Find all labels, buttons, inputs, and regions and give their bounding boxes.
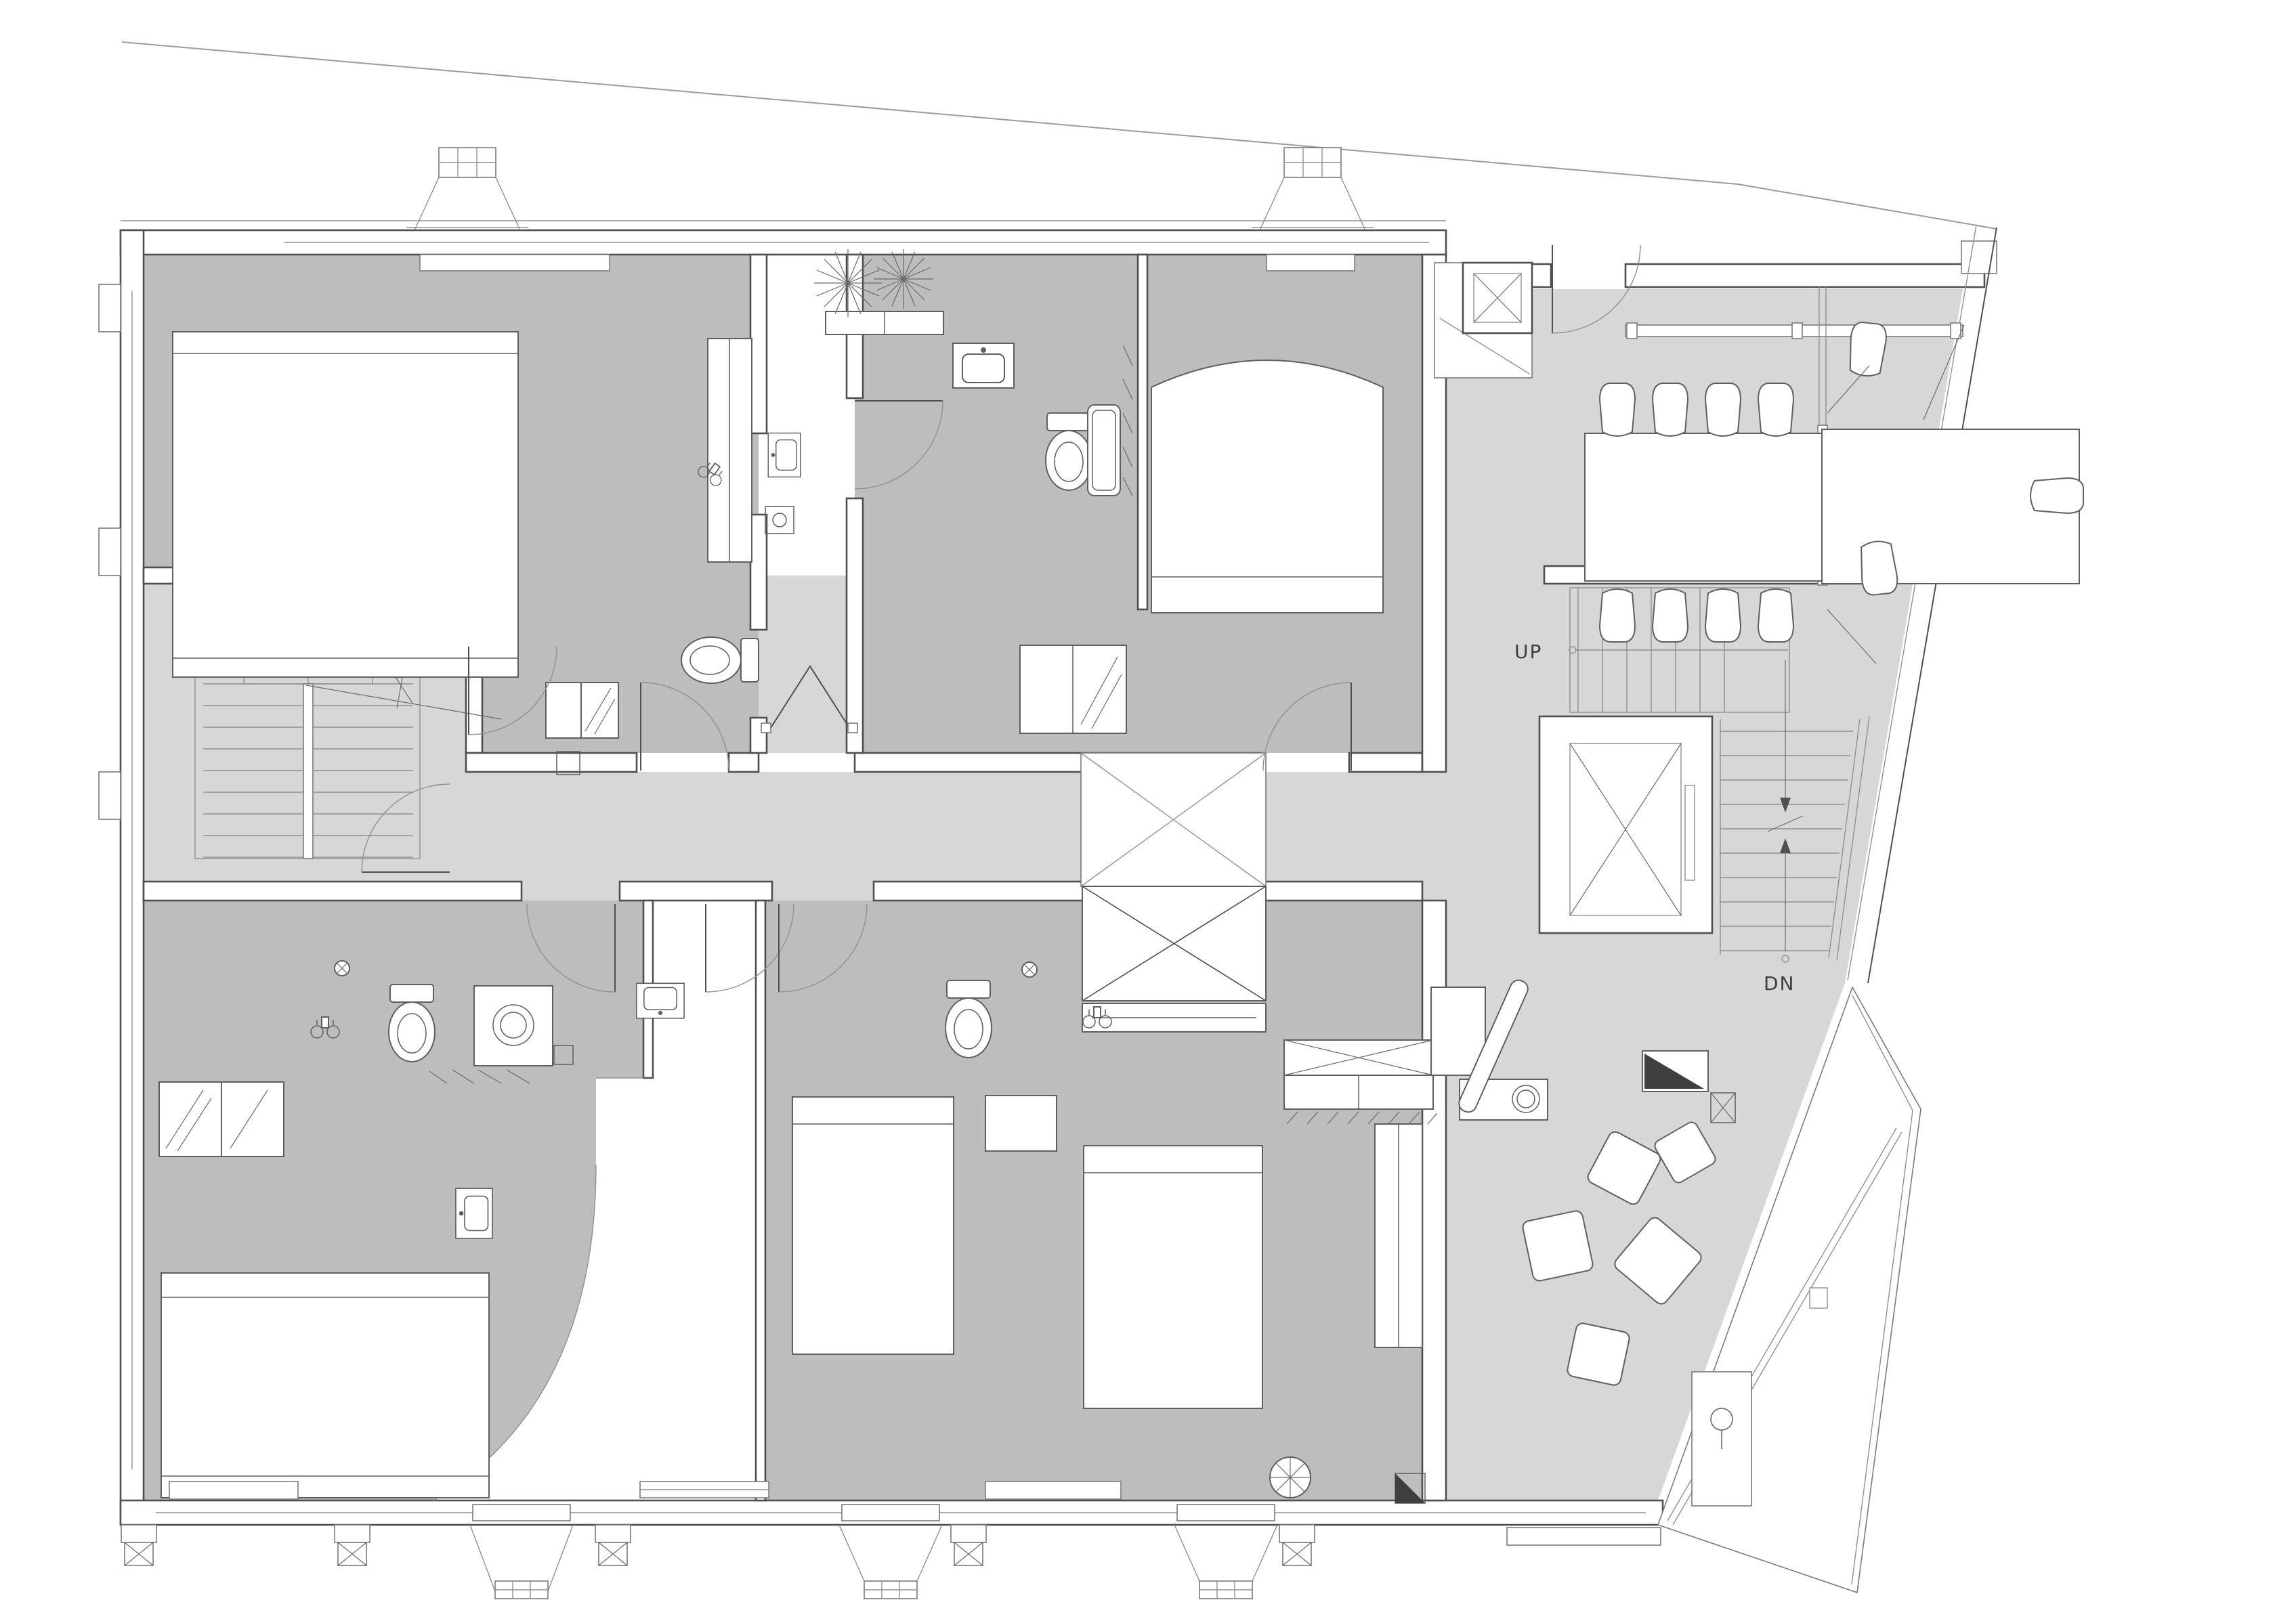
terrace-sill <box>1507 1528 1661 1545</box>
valve-3 <box>335 961 349 976</box>
pilaster-x-boxes <box>121 1525 1315 1565</box>
toilet-1 <box>681 637 759 683</box>
sink-1 <box>768 433 801 477</box>
bed-4a <box>792 1097 954 1354</box>
bay-window-bottom-2 <box>839 1505 942 1599</box>
round-table <box>1270 1457 1311 1498</box>
valve-4 <box>1022 962 1037 977</box>
bay-window-bottom-1 <box>470 1505 573 1599</box>
toilet-2 <box>1046 413 1092 490</box>
floor-plan-drawing: UP DN <box>0 0 2296 1600</box>
nightstand <box>985 1096 1057 1151</box>
conference-table-indoor <box>1585 433 1822 581</box>
window-bench-3 <box>169 1482 298 1499</box>
bed-3 <box>161 1273 489 1498</box>
mirror-cabinet-2 <box>1020 645 1126 733</box>
luggage-rack <box>765 506 794 534</box>
window-sills-bottom <box>640 1482 769 1498</box>
bed-1 <box>173 332 518 677</box>
floor-plan-sheet: UP DN <box>0 0 2296 1600</box>
mirror-cabinet-3 <box>159 1082 284 1156</box>
corridor-branch-floor <box>759 576 855 753</box>
sink-2 <box>953 343 1014 388</box>
wardrobe-4 <box>1375 1124 1422 1347</box>
stair-down-label: DN <box>1764 972 1795 995</box>
window-bench-4 <box>985 1482 1121 1499</box>
skylight-void <box>1081 753 1266 1032</box>
wing-top-wall-right <box>1625 264 1984 287</box>
window-bench-1 <box>420 255 610 271</box>
service-shaft <box>1434 263 1532 378</box>
bay-window-top-1 <box>406 148 528 230</box>
plant-2 <box>874 249 933 309</box>
property-line <box>122 42 1997 229</box>
mop-sink <box>637 983 684 1018</box>
toilet-4 <box>945 980 992 1058</box>
wardrobe-1 <box>708 339 752 562</box>
window-bench-2 <box>1267 255 1355 271</box>
left-wall-pilasters <box>99 284 121 819</box>
elevator-main <box>1539 716 1712 933</box>
toilet-3 <box>389 985 435 1062</box>
bed-4b <box>1084 1146 1262 1408</box>
stair-up-label: UP <box>1514 641 1542 663</box>
plant-1 <box>814 249 882 317</box>
shower-room <box>1692 1372 1751 1506</box>
bay-window-bottom-3 <box>1174 1505 1277 1599</box>
wall-sink-3 <box>456 1188 492 1238</box>
north-glazing-band <box>1625 323 1963 339</box>
bay-window-top-2 <box>1252 148 1374 230</box>
bed-2 <box>1151 360 1383 613</box>
